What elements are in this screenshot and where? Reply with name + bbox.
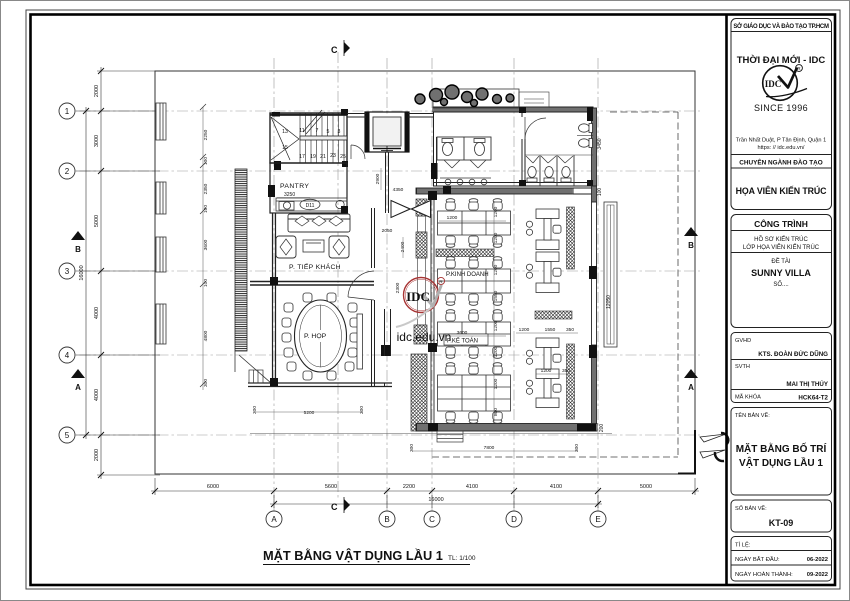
svg-text:KTS. ĐOÀN ĐỨC DŨNG: KTS. ĐOÀN ĐỨC DŨNG	[758, 351, 828, 358]
svg-text:350: 350	[566, 327, 574, 333]
svg-text:MẶT BẰNG VẬT DỤNG LẦU 1: MẶT BẰNG VẬT DỤNG LẦU 1	[263, 548, 443, 563]
svg-text:13: 13	[282, 129, 288, 135]
svg-text:2000: 2000	[94, 449, 100, 461]
svg-text:4800: 4800	[203, 330, 209, 341]
svg-text:4: 4	[65, 351, 70, 360]
svg-text:SỐ BẢN VẼ:: SỐ BẢN VẼ:	[735, 505, 767, 512]
svg-text:CÔNG TRÌNH: CÔNG TRÌNH	[754, 218, 808, 229]
svg-text:TỈ LỆ:: TỈ LỆ:	[735, 541, 751, 549]
svg-text:5600: 5600	[325, 484, 337, 490]
svg-text:1200: 1200	[541, 368, 552, 374]
svg-text:100: 100	[597, 188, 603, 197]
svg-text:C: C	[331, 45, 338, 55]
svg-text:3450: 3450	[597, 138, 603, 149]
svg-text:HCK64-T2: HCK64-T2	[798, 395, 828, 402]
svg-text:B: B	[384, 515, 389, 524]
svg-text:NGÀY BẮT ĐẦU:: NGÀY BẮT ĐẦU:	[735, 555, 780, 563]
svg-text:7: 7	[316, 128, 319, 134]
svg-text:SUNNY VILLA: SUNNY VILLA	[751, 268, 811, 278]
svg-text:5000: 5000	[640, 484, 652, 490]
svg-text:2900: 2900	[375, 173, 381, 184]
svg-text:idc.edu.vn: idc.edu.vn	[397, 330, 452, 344]
svg-text:MAI THỊ THÚY: MAI THỊ THÚY	[786, 381, 828, 388]
svg-text:https: // idc.edu.vn/: https: // idc.edu.vn/	[758, 145, 805, 151]
svg-text:3000: 3000	[94, 135, 100, 147]
svg-text:6000: 6000	[207, 484, 219, 490]
svg-text:SỞ GIÁO DỤC VÀ ĐÀO TẠO TP.HCM: SỞ GIÁO DỤC VÀ ĐÀO TẠO TP.HCM	[733, 23, 829, 30]
svg-text:15: 15	[282, 145, 288, 151]
svg-text:09-2022: 09-2022	[807, 572, 828, 578]
svg-text:300: 300	[359, 406, 365, 414]
svg-text:5000: 5000	[94, 215, 100, 227]
svg-text:5: 5	[65, 431, 70, 440]
svg-text:HỒ SƠ KIẾN TRÚC: HỒ SƠ KIẾN TRÚC	[754, 236, 808, 243]
svg-text:MÃ KHÓA: MÃ KHÓA	[735, 394, 761, 401]
svg-text:Trần Nhất Duật, P Tân Định, Qu: Trần Nhất Duật, P Tân Định, Quận 1	[736, 138, 826, 144]
svg-text:HỌA VIÊN KIẾN TRÚC: HỌA VIÊN KIẾN TRÚC	[736, 185, 827, 196]
svg-text:3250: 3250	[284, 192, 295, 198]
svg-text:R: R	[439, 279, 443, 285]
svg-text:2300: 2300	[395, 282, 401, 293]
svg-text:A: A	[75, 383, 81, 392]
svg-text:C: C	[331, 502, 338, 512]
svg-text:VẬT DỤNG LẦU 1: VẬT DỤNG LẦU 1	[739, 456, 823, 469]
svg-text:2200: 2200	[403, 484, 415, 490]
svg-text:GVHD: GVHD	[735, 338, 751, 344]
svg-text:11: 11	[299, 128, 304, 134]
svg-text:CHUYÊN NGÀNH ĐÀO TẠO: CHUYÊN NGÀNH ĐÀO TẠO	[739, 158, 822, 167]
svg-text:1200: 1200	[447, 215, 458, 221]
svg-text:NGÀY HOÀN THÀNH:: NGÀY HOÀN THÀNH:	[735, 571, 793, 578]
svg-text:C: C	[429, 515, 435, 524]
svg-text:300: 300	[252, 406, 258, 414]
svg-text:LỚP HỌA VIÊN KIẾN TRÚC: LỚP HỌA VIÊN KIẾN TRÚC	[743, 243, 820, 251]
svg-text:P.KẾ TOÁN: P.KẾ TOÁN	[447, 338, 478, 345]
svg-text:2250: 2250	[203, 129, 209, 140]
svg-text:2: 2	[65, 167, 70, 176]
svg-text:1550: 1550	[545, 327, 556, 333]
svg-text:3: 3	[65, 267, 70, 276]
svg-text:B: B	[75, 245, 81, 254]
svg-text:KT-09: KT-09	[769, 518, 794, 528]
svg-text:7800: 7800	[484, 445, 495, 451]
svg-text:12050: 12050	[606, 295, 612, 309]
svg-text:23: 23	[330, 153, 336, 159]
svg-text:5200: 5200	[304, 410, 315, 416]
svg-text:3: 3	[338, 129, 341, 135]
svg-text:4100: 4100	[466, 484, 478, 490]
svg-text:3600: 3600	[457, 330, 468, 336]
svg-text:2050: 2050	[382, 228, 393, 234]
svg-text:2350: 2350	[203, 183, 209, 194]
svg-text:PANTRY: PANTRY	[280, 183, 309, 190]
svg-text:3600: 3600	[203, 239, 209, 250]
svg-text:THỜI ĐẠI MỚI - IDC: THỜI ĐẠI MỚI - IDC	[737, 54, 826, 66]
svg-text:SỐ....: SỐ....	[773, 281, 789, 288]
svg-text:100: 100	[203, 205, 209, 213]
svg-text:21: 21	[320, 154, 326, 160]
svg-text:2000: 2000	[94, 85, 100, 97]
svg-text:A: A	[271, 515, 277, 524]
svg-text:4000: 4000	[94, 389, 100, 401]
svg-text:A: A	[688, 383, 694, 392]
svg-text:16000: 16000	[79, 265, 85, 280]
svg-text:4100: 4100	[550, 484, 562, 490]
svg-text:ĐỀ TÀI: ĐỀ TÀI	[771, 258, 791, 265]
svg-text:IDC: IDC	[765, 79, 782, 89]
svg-text:16000: 16000	[428, 497, 443, 503]
svg-text:P. HỌP: P. HỌP	[304, 333, 327, 340]
svg-text:B: B	[688, 241, 694, 250]
svg-text:1: 1	[65, 107, 70, 116]
svg-text:350: 350	[562, 368, 570, 374]
svg-text:E: E	[595, 515, 600, 524]
svg-text:IDC: IDC	[406, 289, 430, 304]
svg-text:D: D	[511, 515, 517, 524]
svg-text:TÊN BẢN VẼ:: TÊN BẢN VẼ:	[735, 411, 770, 419]
svg-text:300: 300	[574, 444, 580, 452]
svg-text:SVTH: SVTH	[735, 364, 750, 370]
svg-text:4350: 4350	[393, 187, 404, 193]
svg-text:5: 5	[327, 129, 330, 135]
svg-text:19: 19	[310, 154, 316, 160]
svg-text:4000: 4000	[94, 307, 100, 319]
svg-text:200: 200	[599, 424, 605, 433]
svg-text:P.KINH DOANH: P.KINH DOANH	[446, 272, 489, 278]
svg-text:06-2022: 06-2022	[807, 557, 828, 563]
svg-text:1200: 1200	[519, 327, 530, 333]
svg-text:TL: 1/100: TL: 1/100	[448, 555, 476, 562]
svg-text:D11: D11	[306, 203, 315, 209]
svg-text:MẶT BẰNG BỐ TRÍ: MẶT BẰNG BỐ TRÍ	[736, 441, 827, 455]
svg-text:R: R	[797, 66, 800, 71]
svg-text:300: 300	[409, 444, 415, 452]
svg-text:25: 25	[340, 154, 346, 160]
svg-text:SINCE 1996: SINCE 1996	[754, 103, 808, 113]
svg-text:17: 17	[299, 154, 305, 160]
